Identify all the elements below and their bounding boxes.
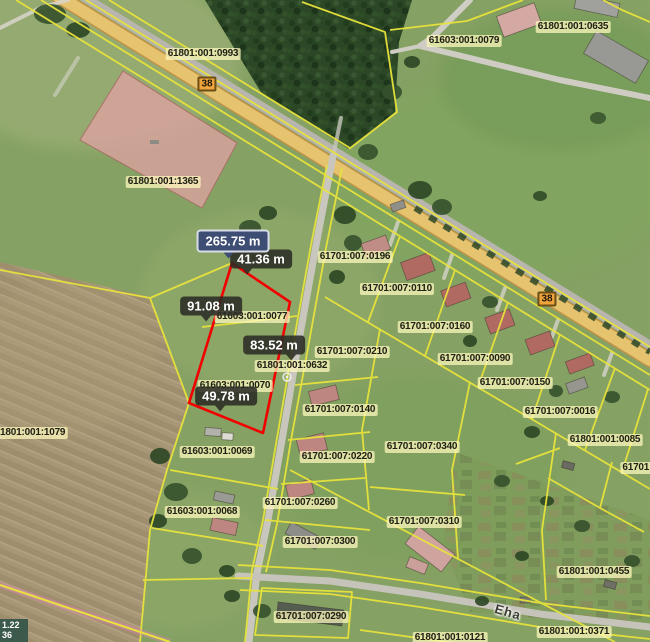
terrain-layer (0, 0, 650, 642)
point-marker-icon (283, 373, 291, 381)
map-viewport[interactable]: 61801:001:099361603:001:007961801:001:06… (0, 0, 650, 642)
coordinate-line-2: 36 (2, 630, 20, 640)
coordinate-line-1: 1.22 (2, 620, 20, 630)
coordinate-readout: 1.22 36 (0, 619, 28, 642)
aerial-basemap (0, 0, 650, 642)
